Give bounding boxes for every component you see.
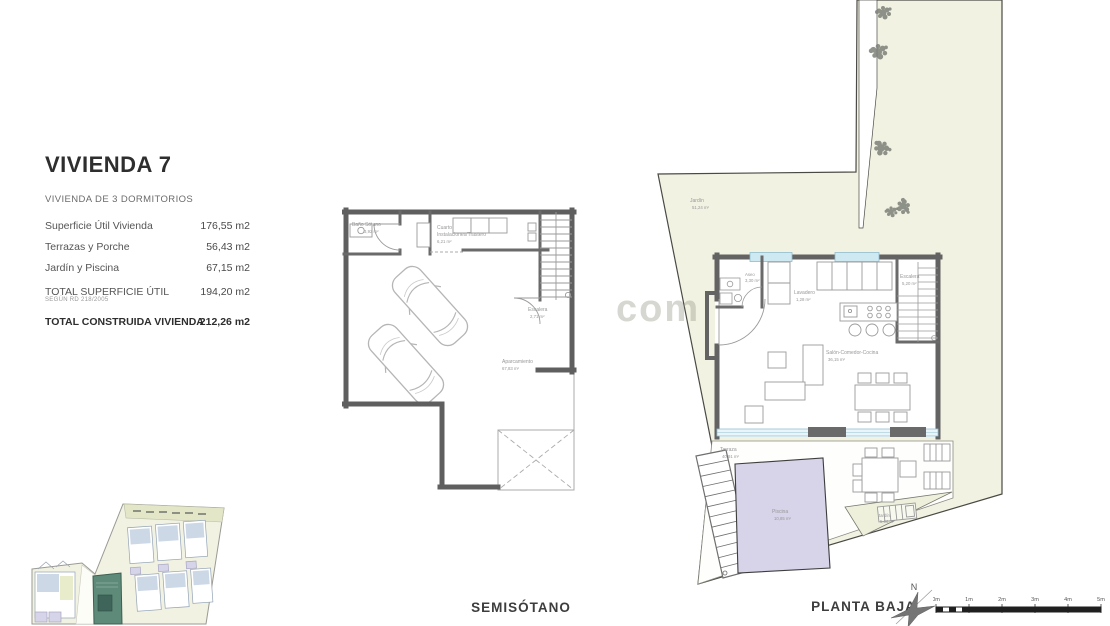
compass-north-label: N — [911, 582, 918, 592]
laundry-cabinet — [768, 262, 790, 304]
spec-value: 212,26 m2 — [200, 316, 250, 328]
spec-value: 67,15 m2 — [206, 262, 250, 274]
kitchen-counter — [817, 262, 892, 290]
floor-label-semisotano: SEMISÓTANO — [436, 600, 606, 615]
spec-row: Terrazas y Porche 56,43 m2 — [45, 241, 250, 253]
scale-tick-label: 1m — [965, 597, 973, 603]
stool-icon — [849, 324, 861, 336]
page-title: VIVIENDA 7 — [45, 152, 171, 178]
spec-value: 194,20 m2 — [200, 286, 250, 298]
spec-label: TOTAL CONSTRUIDA VIVIENDA — [45, 316, 204, 328]
room-label-escalera: Escalera 2,71 m² — [528, 307, 549, 319]
watermark: com — [616, 288, 700, 331]
spec-label: Superficie Útil Vivienda — [45, 220, 153, 232]
title-block: VIVIENDA 7 VIVIENDA DE 3 DORMITORIOS Sup… — [45, 152, 250, 337]
sliding-door-frame — [890, 427, 926, 437]
spec-row-total: TOTAL CONSTRUIDA VIVIENDA 212,26 m2 — [45, 316, 250, 328]
scale-tick-label: 0m — [933, 597, 940, 603]
garage-ramp — [498, 374, 574, 490]
spec-value: 56,43 m2 — [206, 241, 250, 253]
basement-stairs-icon — [528, 212, 572, 300]
spec-note: SEGÚN RD 218/2005 — [45, 297, 108, 303]
site-highlight-unit — [93, 573, 122, 624]
spec-label: Jardín y Piscina — [45, 262, 119, 274]
site-key-plan — [18, 477, 248, 626]
scale-tick-label: 5m — [1097, 597, 1105, 603]
stool-icon — [866, 324, 878, 336]
spec-value: 176,55 m2 — [200, 220, 250, 232]
floorplan-sheet: VIVIENDA 7 VIVIENDA DE 3 DORMITORIOS Sup… — [0, 0, 1110, 626]
spec-row: Superficie Útil Vivienda 176,55 m2 — [45, 220, 250, 232]
dining-set-icon — [855, 373, 910, 422]
semisotano-floorplan: Baño Sótano 3,92 m² Cuarto Instalaciones… — [342, 196, 578, 508]
sliding-door-frame — [808, 427, 846, 437]
room-label-aparcamiento: Aparcamiento 67,83 m² — [502, 359, 534, 371]
plantabaja-floorplan: Jardín 51,24 m² Aseo 3,30 m² Lavadero 1,… — [650, 0, 1010, 592]
scale-tick-label: 3m — [1031, 597, 1039, 603]
spec-label: Terrazas y Porche — [45, 241, 130, 253]
stool-icon — [883, 324, 895, 336]
scale-tick-label: 2m — [998, 597, 1006, 603]
spec-row: Jardín y Piscina 67,15 m2 — [45, 262, 250, 274]
scale-tick-label: 4m — [1064, 597, 1072, 603]
scale-bar: 0m 1m 2m 3m 4m 5m — [933, 592, 1107, 620]
page-subtitle: VIVIENDA DE 3 DORMITORIOS — [45, 194, 193, 205]
